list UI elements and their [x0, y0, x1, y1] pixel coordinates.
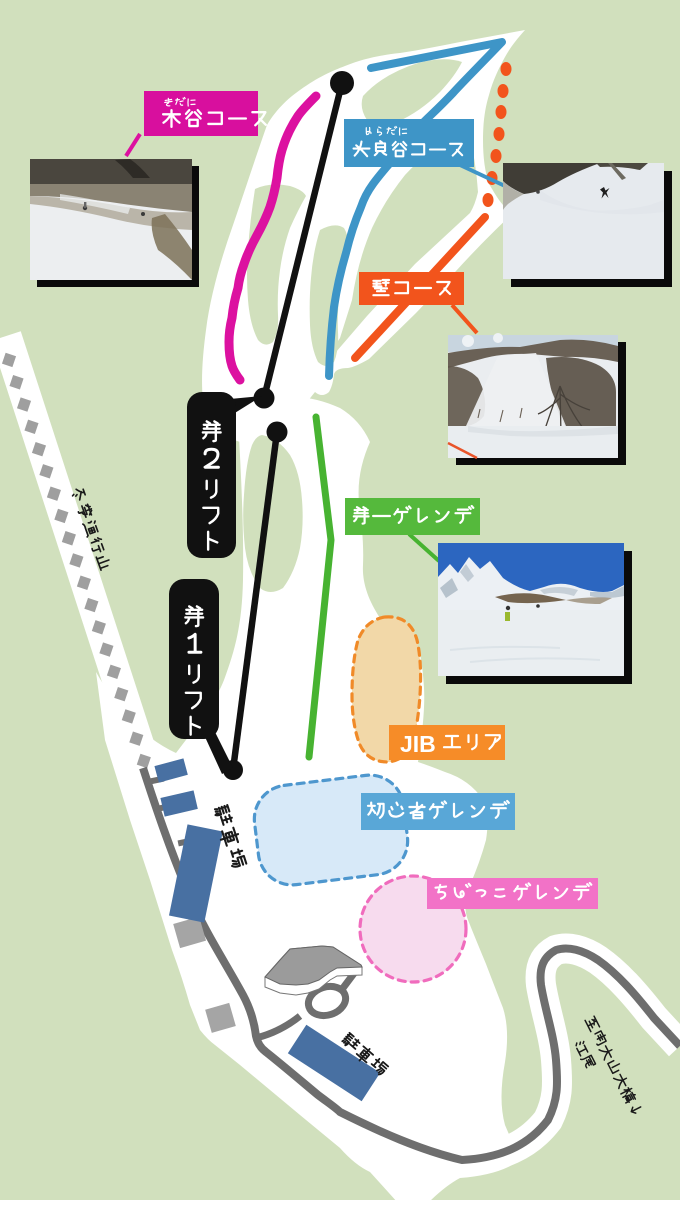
svg-text:JIB: JIB: [400, 731, 436, 757]
